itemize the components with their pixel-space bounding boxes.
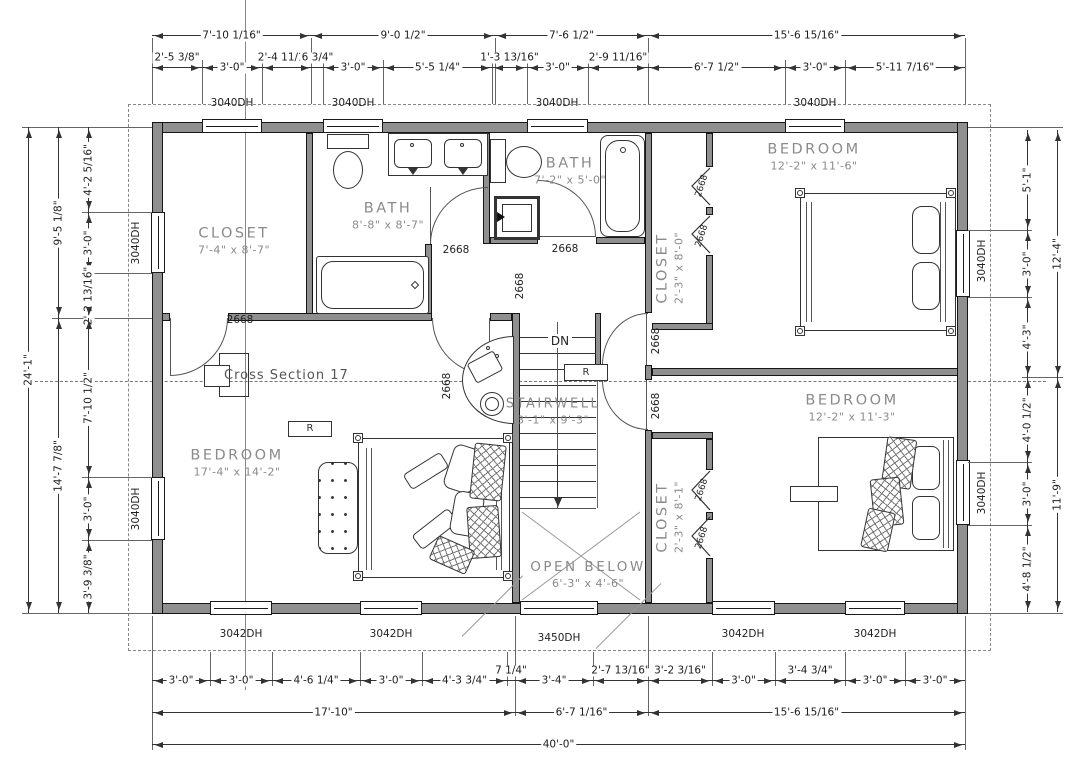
extension-line — [22, 613, 152, 614]
interior-wall — [490, 313, 512, 321]
dim-segment: 1'-3 13/16" — [492, 67, 527, 68]
sink-drain-icon — [408, 168, 418, 180]
extension-line — [965, 616, 966, 750]
tub-drain — [620, 147, 626, 153]
dim-segment: 11'-9" — [1057, 377, 1058, 612]
dim-segment: 4'-3" — [1027, 297, 1028, 377]
faucet-dot — [410, 143, 414, 147]
dim-label: 2'-5 3/8" — [152, 52, 201, 63]
dim-segment: 3'-0" — [152, 680, 210, 681]
dim-label: 3'-0" — [339, 62, 368, 73]
room-label-bedroom-l: BEDROOM 17'-4" x 14'-2" — [190, 446, 283, 479]
dim-segment: 3'-0" — [1027, 230, 1028, 297]
door-label: 2668 — [650, 328, 662, 355]
dim-segment: 4'-3 3/4" — [422, 680, 507, 681]
dim-label: 3'-0" — [167, 675, 196, 686]
interior-wall — [706, 133, 713, 167]
window-label: 3042DH — [722, 628, 765, 640]
window-label: 3450DH — [538, 632, 581, 644]
extension-line — [52, 318, 152, 319]
window — [956, 460, 970, 525]
extension-line — [495, 38, 496, 104]
dim-segment: 17'-10" — [152, 712, 515, 713]
bed-rail — [371, 448, 372, 570]
door-label: 2668 — [552, 243, 579, 255]
pillow — [912, 446, 940, 490]
dim-segment: 3'-0" — [88, 477, 89, 540]
room-label-stairwell: STAIRWELL 3'-1" x 9'-3" — [506, 396, 600, 427]
dim-segment: 4'-0 1/2" — [1027, 377, 1028, 462]
dim-label: 3'-0" — [543, 62, 572, 73]
dim-segment: 3'-0" — [785, 67, 845, 68]
dim-segment: 4'-6 1/4" — [272, 680, 360, 681]
interior-wall — [645, 133, 652, 313]
window-label: 3040DH — [976, 472, 988, 515]
window — [151, 477, 165, 540]
desk-dot — [486, 346, 490, 350]
interior-wall — [706, 255, 713, 325]
dim-label: 6'-7 1/16" — [554, 707, 610, 718]
interior-wall — [228, 313, 432, 321]
dim-label: 3'-0" — [218, 62, 247, 73]
window-label: 3040DH — [130, 488, 142, 531]
ottoman — [318, 462, 358, 554]
window-label: 3040DH — [332, 97, 375, 109]
bed-rail — [811, 202, 812, 322]
door-label: 2668 — [650, 393, 662, 420]
dim-label: 7'-6 1/2" — [547, 30, 596, 41]
dim-label: 4'-6 1/4" — [291, 675, 340, 686]
dim-segment: 3'-0" — [1027, 462, 1028, 525]
door-label: 2668 — [441, 373, 453, 400]
dim-label: 14'-7 7/8" — [53, 438, 64, 494]
dim-label: 6'-7 1/2" — [692, 62, 741, 73]
stairs-down-label: DN — [548, 334, 572, 348]
dim-segment: 6'-7 1/16" — [515, 712, 648, 713]
dim-segment: 6'-7 1/2" — [648, 67, 785, 68]
bed-post — [353, 433, 363, 443]
cross-section-label: Cross Section 17 — [224, 368, 349, 383]
foot-bench — [790, 486, 838, 502]
dim-label: 6 3/4" — [300, 52, 336, 63]
room-label-open-below: OPEN BELOW 6'-3" x 4'-6" — [530, 559, 646, 591]
dim-label: 4'-0 1/2" — [1022, 395, 1033, 444]
room-label-bedroom-tr: BEDROOM 12'-2" x 11'-6" — [767, 140, 860, 173]
room-label-closet-tr: CLOSET 2'-3" x 8'-0" — [653, 232, 686, 304]
dim-label: 5'-5 1/4" — [413, 62, 462, 73]
door-label: 2668 — [443, 244, 470, 256]
faucet-icon — [497, 212, 510, 222]
toilet — [333, 151, 363, 189]
dim-label: 7'-10 1/16" — [200, 30, 262, 41]
dim-label: 3'-0" — [1022, 479, 1033, 508]
dim-segment: 2'-9 11/16" — [588, 67, 648, 68]
extension-line — [82, 540, 152, 541]
bed-post — [353, 571, 363, 581]
dim-label: 4'-3 3/4" — [440, 675, 489, 686]
dim-label: 7'-10 1/2" — [83, 370, 94, 426]
dim-segment: 5'-11 7/16" — [845, 67, 965, 68]
interior-wall — [306, 133, 313, 314]
window-label: 3042DH — [220, 628, 263, 640]
extension-line — [968, 462, 1032, 463]
dim-label: 2'-9 11/16" — [587, 52, 649, 63]
stair-arrow-stem — [557, 455, 558, 499]
sink-drain-icon — [458, 168, 468, 180]
dim-label: 3'-0" — [729, 675, 758, 686]
dim-label: 7 1/4" — [493, 665, 529, 676]
dim-segment: 3'-9 3/8" — [88, 540, 89, 613]
pillow — [912, 496, 940, 540]
extension-line — [82, 477, 152, 478]
door-label: 2668 — [227, 314, 254, 326]
bed-rail — [940, 202, 941, 322]
window — [527, 119, 588, 133]
bed-rail — [366, 448, 367, 570]
dim-label: 24'-1" — [23, 352, 34, 388]
extension-line — [82, 212, 152, 213]
window — [712, 601, 775, 615]
door-label: 2668 — [514, 273, 526, 300]
interior-wall — [162, 313, 170, 321]
window — [845, 601, 905, 615]
dim-segment: 3'-2 3/16" — [648, 680, 712, 681]
dim-segment: 12'-4" — [1057, 130, 1058, 377]
room-label-closet-tl: CLOSET 7'-4" x 8'-7" — [198, 224, 270, 257]
dim-segment: 2'-2 13/16" — [88, 273, 89, 318]
stair-rail-line — [597, 365, 598, 508]
dim-segment: 7'-10 1/2" — [88, 318, 89, 477]
dim-label: 5'-11 7/16" — [874, 62, 936, 73]
bed-rail — [806, 202, 807, 322]
window — [785, 119, 845, 133]
exterior-wall-right — [957, 122, 968, 614]
dim-label: 4'-8 1/2" — [1022, 544, 1033, 593]
dim-label: 3'-0" — [1022, 249, 1033, 278]
dim-label: 4'-2 5/16" — [83, 142, 94, 198]
dim-label: 3'-0" — [377, 675, 406, 686]
window-label: 3042DH — [854, 628, 897, 640]
bathtub-basin — [605, 140, 640, 232]
dim-segment: 2'-5 3/8" — [152, 67, 202, 68]
dim-label: 3'-0" — [861, 675, 890, 686]
dim-label: 3'-4" — [540, 675, 569, 686]
faucet-dot — [460, 143, 464, 147]
window — [151, 212, 165, 273]
extension-line — [968, 127, 1063, 128]
dim-label: 11'-9" — [1052, 477, 1063, 513]
desk-dot — [495, 354, 499, 358]
dim-label: 2'-7 13/16" — [589, 665, 651, 676]
pillow — [912, 262, 940, 310]
dim-segment: 15'-6 15/16" — [648, 35, 965, 36]
bed-rail — [943, 440, 944, 548]
dim-label: 3'-0" — [801, 62, 830, 73]
dim-label: 4'-3" — [1022, 323, 1033, 352]
dim-label: 3'-0" — [83, 228, 94, 257]
window — [360, 601, 422, 615]
extension-line — [311, 38, 312, 104]
dim-segment: 3'-4 3/4" — [775, 680, 845, 681]
dim-segment: 4'-8 1/2" — [1027, 525, 1028, 612]
register-box: R — [564, 364, 608, 381]
dim-segment: 9'-5 1/8" — [58, 127, 59, 318]
bed-post — [795, 188, 805, 198]
desk-lamp-inner — [485, 397, 499, 411]
dim-segment: 24'-1" — [28, 127, 29, 613]
pillow — [912, 206, 940, 254]
window — [210, 601, 272, 615]
interior-wall — [645, 365, 652, 380]
window-label: 3040DH — [794, 97, 837, 109]
dim-label: 12'-4" — [1052, 236, 1063, 272]
dim-label: 9'-5 1/8" — [53, 198, 64, 247]
dim-segment: 2'-4 11/16" — [262, 67, 312, 68]
dim-label: 3'-4 3/4" — [785, 665, 834, 676]
window — [956, 230, 970, 297]
extension-line — [965, 38, 966, 104]
bed-post — [795, 326, 805, 336]
dim-segment: 3'-0" — [712, 680, 775, 681]
dim-segment: 3'-0" — [360, 680, 422, 681]
room-label-bedroom-br: BEDROOM 12'-2" x 11'-3" — [805, 391, 898, 424]
extension-line — [968, 525, 1032, 526]
dim-segment: 3'-0" — [905, 680, 965, 681]
interior-wall — [706, 558, 713, 603]
dim-label: 3'-2 3/16" — [652, 665, 708, 676]
dim-label: 1'-3 13/16" — [478, 52, 540, 63]
quilt — [469, 442, 507, 501]
window-label: 3040DH — [976, 240, 988, 283]
bed-rail — [948, 440, 949, 548]
dim-segment: 4'-2 5/16" — [88, 127, 89, 212]
dim-label: 15'-6 15/16" — [772, 30, 841, 41]
window — [202, 119, 262, 133]
dim-label: 3'-9 3/8" — [83, 552, 94, 601]
stair-down-arrow-icon — [554, 498, 562, 511]
register-box: R — [288, 421, 332, 437]
dim-segment: 3'-4" — [515, 680, 593, 681]
toilet-tank — [490, 139, 506, 183]
dim-segment: 5'-1" — [1027, 130, 1028, 230]
dim-label: 3'-0" — [227, 675, 256, 686]
dim-segment: 3'-0" — [210, 680, 272, 681]
window-label: 3042DH — [370, 628, 413, 640]
dim-label: 17'-10" — [312, 707, 354, 718]
bed-rail — [945, 202, 946, 322]
dim-segment: 3'-0" — [845, 680, 905, 681]
window-label: 3040DH — [211, 97, 254, 109]
interior-wall-center — [652, 368, 958, 376]
bathtub-basin — [321, 261, 424, 309]
window — [520, 601, 598, 615]
interior-wall — [596, 237, 645, 244]
extension-line — [648, 38, 649, 104]
room-label-bath-small: BATH 7'-2" x 5'-0" — [534, 154, 606, 187]
dim-segment: 6 3/4" — [312, 67, 323, 68]
dim-segment: 7'-6 1/2" — [495, 35, 648, 36]
dim-segment: 14'-7 7/8" — [58, 318, 59, 613]
dim-segment: 7'-10 1/16" — [152, 35, 311, 36]
dim-segment: 2'-7 13/16" — [593, 680, 648, 681]
window — [323, 119, 383, 133]
exterior-wall-left — [152, 122, 163, 614]
dim-segment: 40'-0" — [152, 744, 965, 745]
interior-wall — [645, 430, 652, 603]
extension-line — [152, 38, 153, 104]
floor-plan-canvas: 3040DH 3040DH 3040DH 3040DH 3042DH 3042D… — [0, 0, 1079, 767]
toilet-tank — [327, 134, 369, 149]
interior-wall — [706, 207, 713, 215]
dim-segment: 3'-0" — [527, 67, 588, 68]
dim-label: 15'-6 15/16" — [772, 707, 841, 718]
interior-wall — [706, 439, 713, 470]
window-label: 3040DH — [130, 222, 142, 265]
bed-post — [946, 326, 956, 336]
extension-line — [968, 230, 1032, 231]
dim-label: 40'-0" — [541, 739, 577, 750]
dim-segment: 3'-0" — [323, 67, 383, 68]
extension-line — [968, 613, 1063, 614]
dim-label: 5'-1" — [1022, 166, 1033, 195]
dim-segment: 9'-0 1/2" — [311, 35, 495, 36]
bed-post — [946, 188, 956, 198]
extension-line — [968, 297, 1032, 298]
dim-segment: 15'-6 15/16" — [648, 712, 965, 713]
bed-post — [503, 571, 513, 581]
bed-post — [503, 433, 513, 443]
room-label-bath-main: BATH 8'-8" x 8'-7" — [352, 199, 424, 232]
interior-wall — [652, 432, 713, 439]
dim-segment: 3'-0" — [202, 67, 262, 68]
dim-segment: 5'-5 1/4" — [383, 67, 492, 68]
window-label: 3040DH — [536, 97, 579, 109]
dim-label: 3'-0" — [921, 675, 950, 686]
room-label-closet-br: CLOSET 2'-3" x 8'-1" — [653, 481, 686, 553]
dim-label: 9'-0 1/2" — [378, 30, 427, 41]
dim-label: 3'-0" — [83, 494, 94, 523]
dim-segment: 7 1/4" — [507, 680, 515, 681]
